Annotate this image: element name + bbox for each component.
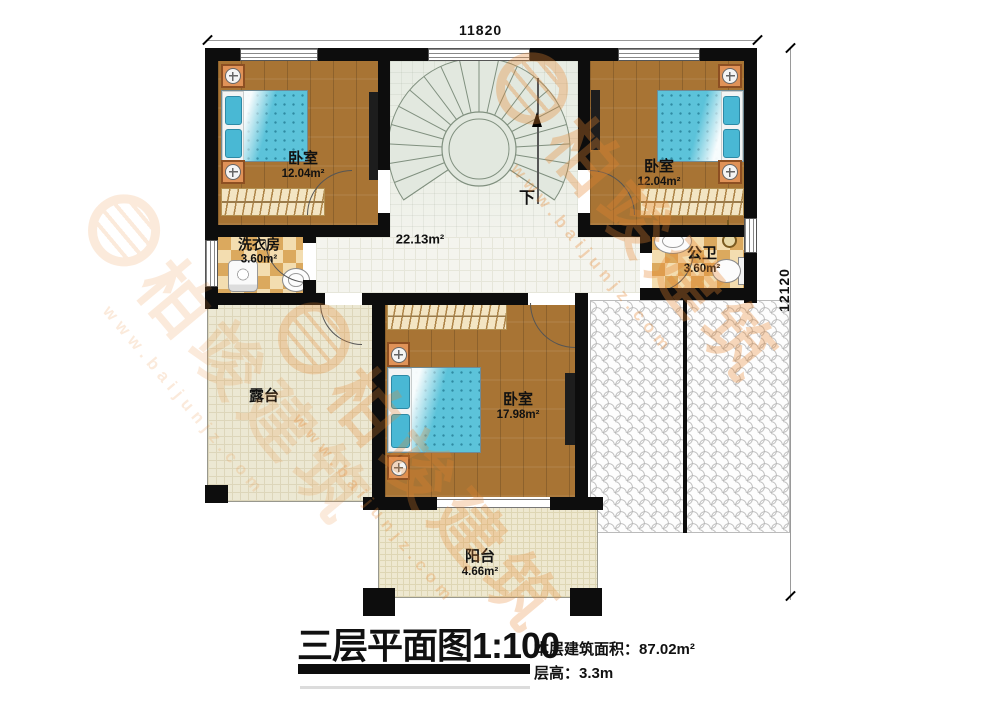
roof-ridge-line xyxy=(683,300,687,533)
window xyxy=(240,48,318,61)
roof-tiles xyxy=(590,300,790,533)
room-label-bedroom1: 卧室 12.04m² xyxy=(282,151,325,181)
bed-mattress xyxy=(412,368,480,452)
wall-segment xyxy=(744,48,757,218)
watermark-logo-icon xyxy=(74,179,175,280)
wall-segment xyxy=(385,293,528,305)
drawing-title: 三层平面图1:100 xyxy=(297,617,559,669)
wall-segment xyxy=(205,48,218,240)
room-label-bedroom3: 卧室 17.98m² xyxy=(497,392,540,422)
window xyxy=(618,48,700,61)
room-label-balcony: 阳台 4.66m² xyxy=(462,549,498,579)
tv-cabinet xyxy=(591,90,600,150)
wall-segment xyxy=(578,213,590,237)
wall-segment xyxy=(205,225,390,237)
balcony-corner-post xyxy=(570,588,602,616)
dimension-right-value: 12120 xyxy=(776,268,792,312)
terrace-corner-post xyxy=(205,485,228,503)
title-text: 三层平面图 xyxy=(297,625,472,666)
stair-direction-line xyxy=(537,78,539,204)
bed xyxy=(387,367,481,453)
balcony-corner-post xyxy=(363,588,395,616)
pillow xyxy=(391,414,410,448)
title-underline-light xyxy=(300,686,530,689)
dimension-line-top xyxy=(207,40,757,41)
room-label-terrace: 露台 xyxy=(249,389,279,406)
wall-segment xyxy=(303,237,316,243)
nightstand xyxy=(718,160,742,184)
room-label-hallway: 22.13m² xyxy=(396,233,444,248)
floor-height-line: 层高：3.3m xyxy=(534,662,613,683)
lamp-icon xyxy=(391,347,407,363)
pillow xyxy=(723,129,740,158)
dimension-line-right xyxy=(790,48,791,600)
window xyxy=(428,48,530,61)
wall-segment xyxy=(578,60,590,170)
wall-segment xyxy=(205,293,325,305)
wall-segment xyxy=(550,497,603,510)
room-label-bathroom: 公卫 3.60m² xyxy=(684,246,720,276)
nightstand xyxy=(221,64,245,88)
lamp-icon xyxy=(225,164,241,180)
wall-segment xyxy=(372,293,385,510)
bed xyxy=(657,90,744,162)
room-label-laundry: 洗衣房 3.60m² xyxy=(238,238,280,267)
pillow xyxy=(723,96,740,125)
wardrobe xyxy=(387,303,507,330)
wardrobe xyxy=(640,188,744,216)
nightstand xyxy=(387,342,410,367)
bed-mattress xyxy=(658,91,721,161)
nightstand xyxy=(718,64,742,88)
pillow xyxy=(391,375,410,409)
wall-segment xyxy=(363,497,437,510)
lamp-icon xyxy=(722,164,738,180)
window xyxy=(744,218,757,253)
lamp-icon xyxy=(225,68,241,84)
hallway-floor xyxy=(316,237,640,293)
wall-segment xyxy=(318,48,428,61)
title-underline xyxy=(298,664,530,674)
lamp-icon xyxy=(722,68,738,84)
wall-segment xyxy=(578,225,757,237)
room-label-bedroom2: 卧室 12.04m² xyxy=(638,159,681,189)
pillow xyxy=(225,129,242,158)
balcony-sliding-door xyxy=(437,499,550,508)
nightstand xyxy=(221,160,245,184)
wall-segment xyxy=(575,293,588,510)
stair-up-arrow-icon xyxy=(532,112,542,127)
dimension-top-value: 11820 xyxy=(459,22,502,38)
pillow xyxy=(225,96,242,125)
floor-plan-canvas: 下 xyxy=(0,0,1000,706)
stair-down-label: 下 xyxy=(519,184,535,208)
wall-segment xyxy=(640,237,652,253)
nightstand xyxy=(387,455,410,480)
tv-cabinet xyxy=(369,92,378,180)
window xyxy=(205,240,218,287)
floor-area-line: 本层建筑面积：87.02m² xyxy=(534,638,695,659)
wall-segment xyxy=(640,288,757,300)
spiral-staircase xyxy=(385,55,585,215)
wall-segment xyxy=(378,60,390,170)
wall-segment xyxy=(530,48,618,61)
lamp-icon xyxy=(391,460,407,476)
